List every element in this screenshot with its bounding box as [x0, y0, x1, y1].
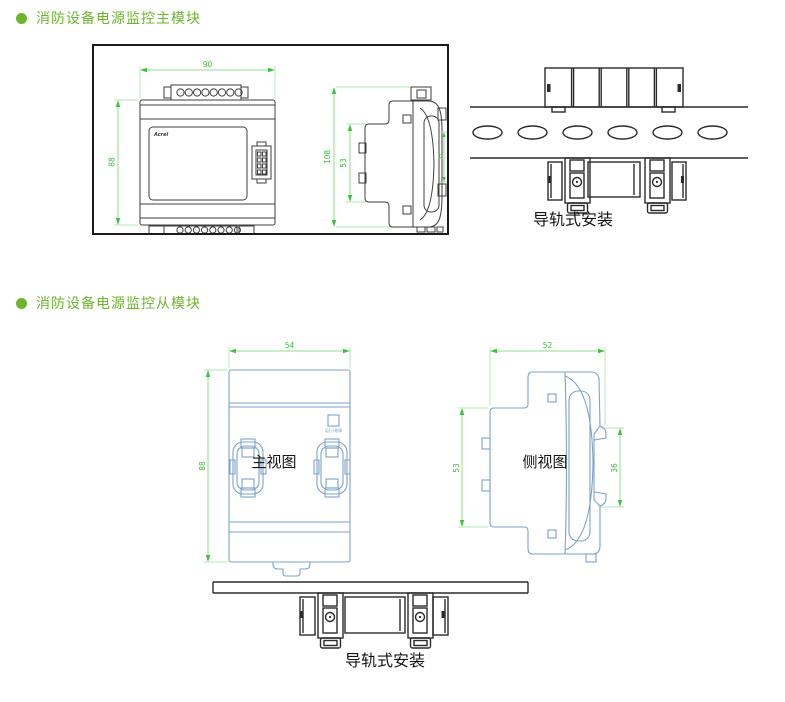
slave-rail-mounting: 导轨式安装 [205, 576, 545, 681]
brand-logo: Acrel [153, 132, 169, 138]
led-label: 运行/故障 [325, 427, 342, 433]
slave-rail-caption: 导轨式安装 [345, 651, 425, 670]
slave-front-dim-width: 54 [229, 341, 350, 368]
section-main-header: 消防设备电源监控主模块 [16, 8, 201, 28]
svg-text:36: 36 [610, 463, 619, 473]
slave-side-view: 52 53 36 [448, 334, 633, 584]
main-front-dim-height: 88 [108, 100, 139, 225]
svg-text:88: 88 [198, 461, 207, 471]
main-side-dim-total: 108 [323, 87, 416, 227]
section-slave-header: 消防设备电源监控从模块 [16, 293, 201, 313]
led-indicator [328, 415, 339, 426]
slave-side-label: 侧视图 [522, 453, 567, 471]
slave-front-view: 54 88 [195, 334, 360, 584]
slave-front-dim-height: 88 [198, 370, 227, 562]
main-side-connector [252, 142, 271, 183]
main-front-view: Acrel [140, 85, 275, 233]
bullet-icon [16, 13, 27, 24]
main-side-view: 35 [359, 87, 447, 232]
main-module-drawing: 90 88 [94, 46, 447, 233]
svg-text:52: 52 [543, 341, 553, 350]
page: 消防设备电源监控主模块 90 88 [0, 0, 785, 702]
svg-text:53: 53 [339, 158, 348, 168]
rail-module-clips [548, 158, 686, 213]
rail-module-top [545, 68, 683, 112]
main-front-dim-width: 90 [140, 60, 275, 98]
main-module-drawing-box: 90 88 [92, 44, 449, 235]
slave-bottom-tab [273, 562, 310, 576]
slave-rail-clips [300, 593, 448, 648]
section-slave-title: 消防设备电源监控从模块 [36, 293, 201, 313]
section-main-title: 消防设备电源监控主模块 [36, 8, 201, 28]
bullet-icon [16, 298, 27, 309]
slave-front-label: 主视图 [251, 453, 296, 471]
slave-side-dim-height: 53 [452, 408, 488, 527]
svg-text:90: 90 [203, 60, 213, 69]
svg-text:88: 88 [108, 157, 117, 167]
main-rail-caption: 导轨式安装 [533, 210, 613, 229]
svg-text:54: 54 [285, 341, 295, 350]
slave-right-connector [314, 439, 350, 497]
svg-text:53: 53 [452, 463, 461, 473]
main-side-dim-body: 53 [339, 124, 366, 202]
svg-text:35: 35 [438, 154, 444, 160]
main-bottom-terminal [149, 226, 254, 233]
main-rail-mounting: 导轨式安装 [460, 60, 785, 232]
svg-text:108: 108 [323, 150, 332, 165]
slave-side-dim-rail: 36 [600, 428, 624, 507]
